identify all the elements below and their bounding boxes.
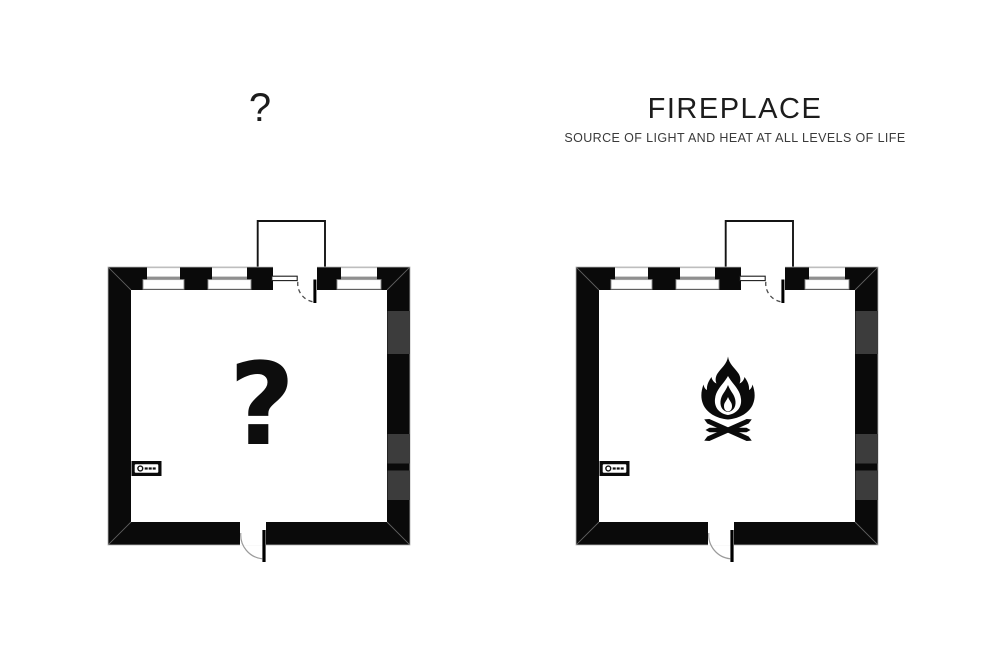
- entry-vestibule: [258, 221, 325, 267]
- window: [676, 267, 719, 289]
- window: [337, 267, 381, 289]
- window: [143, 267, 184, 289]
- switch-icon: [132, 461, 162, 476]
- window: [805, 267, 849, 289]
- right-panel-subtitle: SOURCE OF LIGHT AND HEAT AT ALL LEVELS O…: [535, 132, 935, 146]
- window: [611, 267, 652, 289]
- floor-plan-right: [568, 210, 888, 570]
- bottom-door: [708, 522, 734, 562]
- bottom-door: [240, 522, 266, 562]
- right-panel-title: FIREPLACE: [535, 95, 935, 124]
- entry-vestibule: [726, 221, 793, 267]
- switch-icon: [600, 461, 630, 476]
- question-mark-symbol: ?: [229, 338, 295, 471]
- canvas: ? FIREPLACE SOURCE OF LIGHT AND HEAT AT …: [0, 0, 1000, 661]
- window: [208, 267, 251, 289]
- left-panel-title: ?: [100, 88, 420, 128]
- floor-plan-left: ?: [100, 210, 420, 570]
